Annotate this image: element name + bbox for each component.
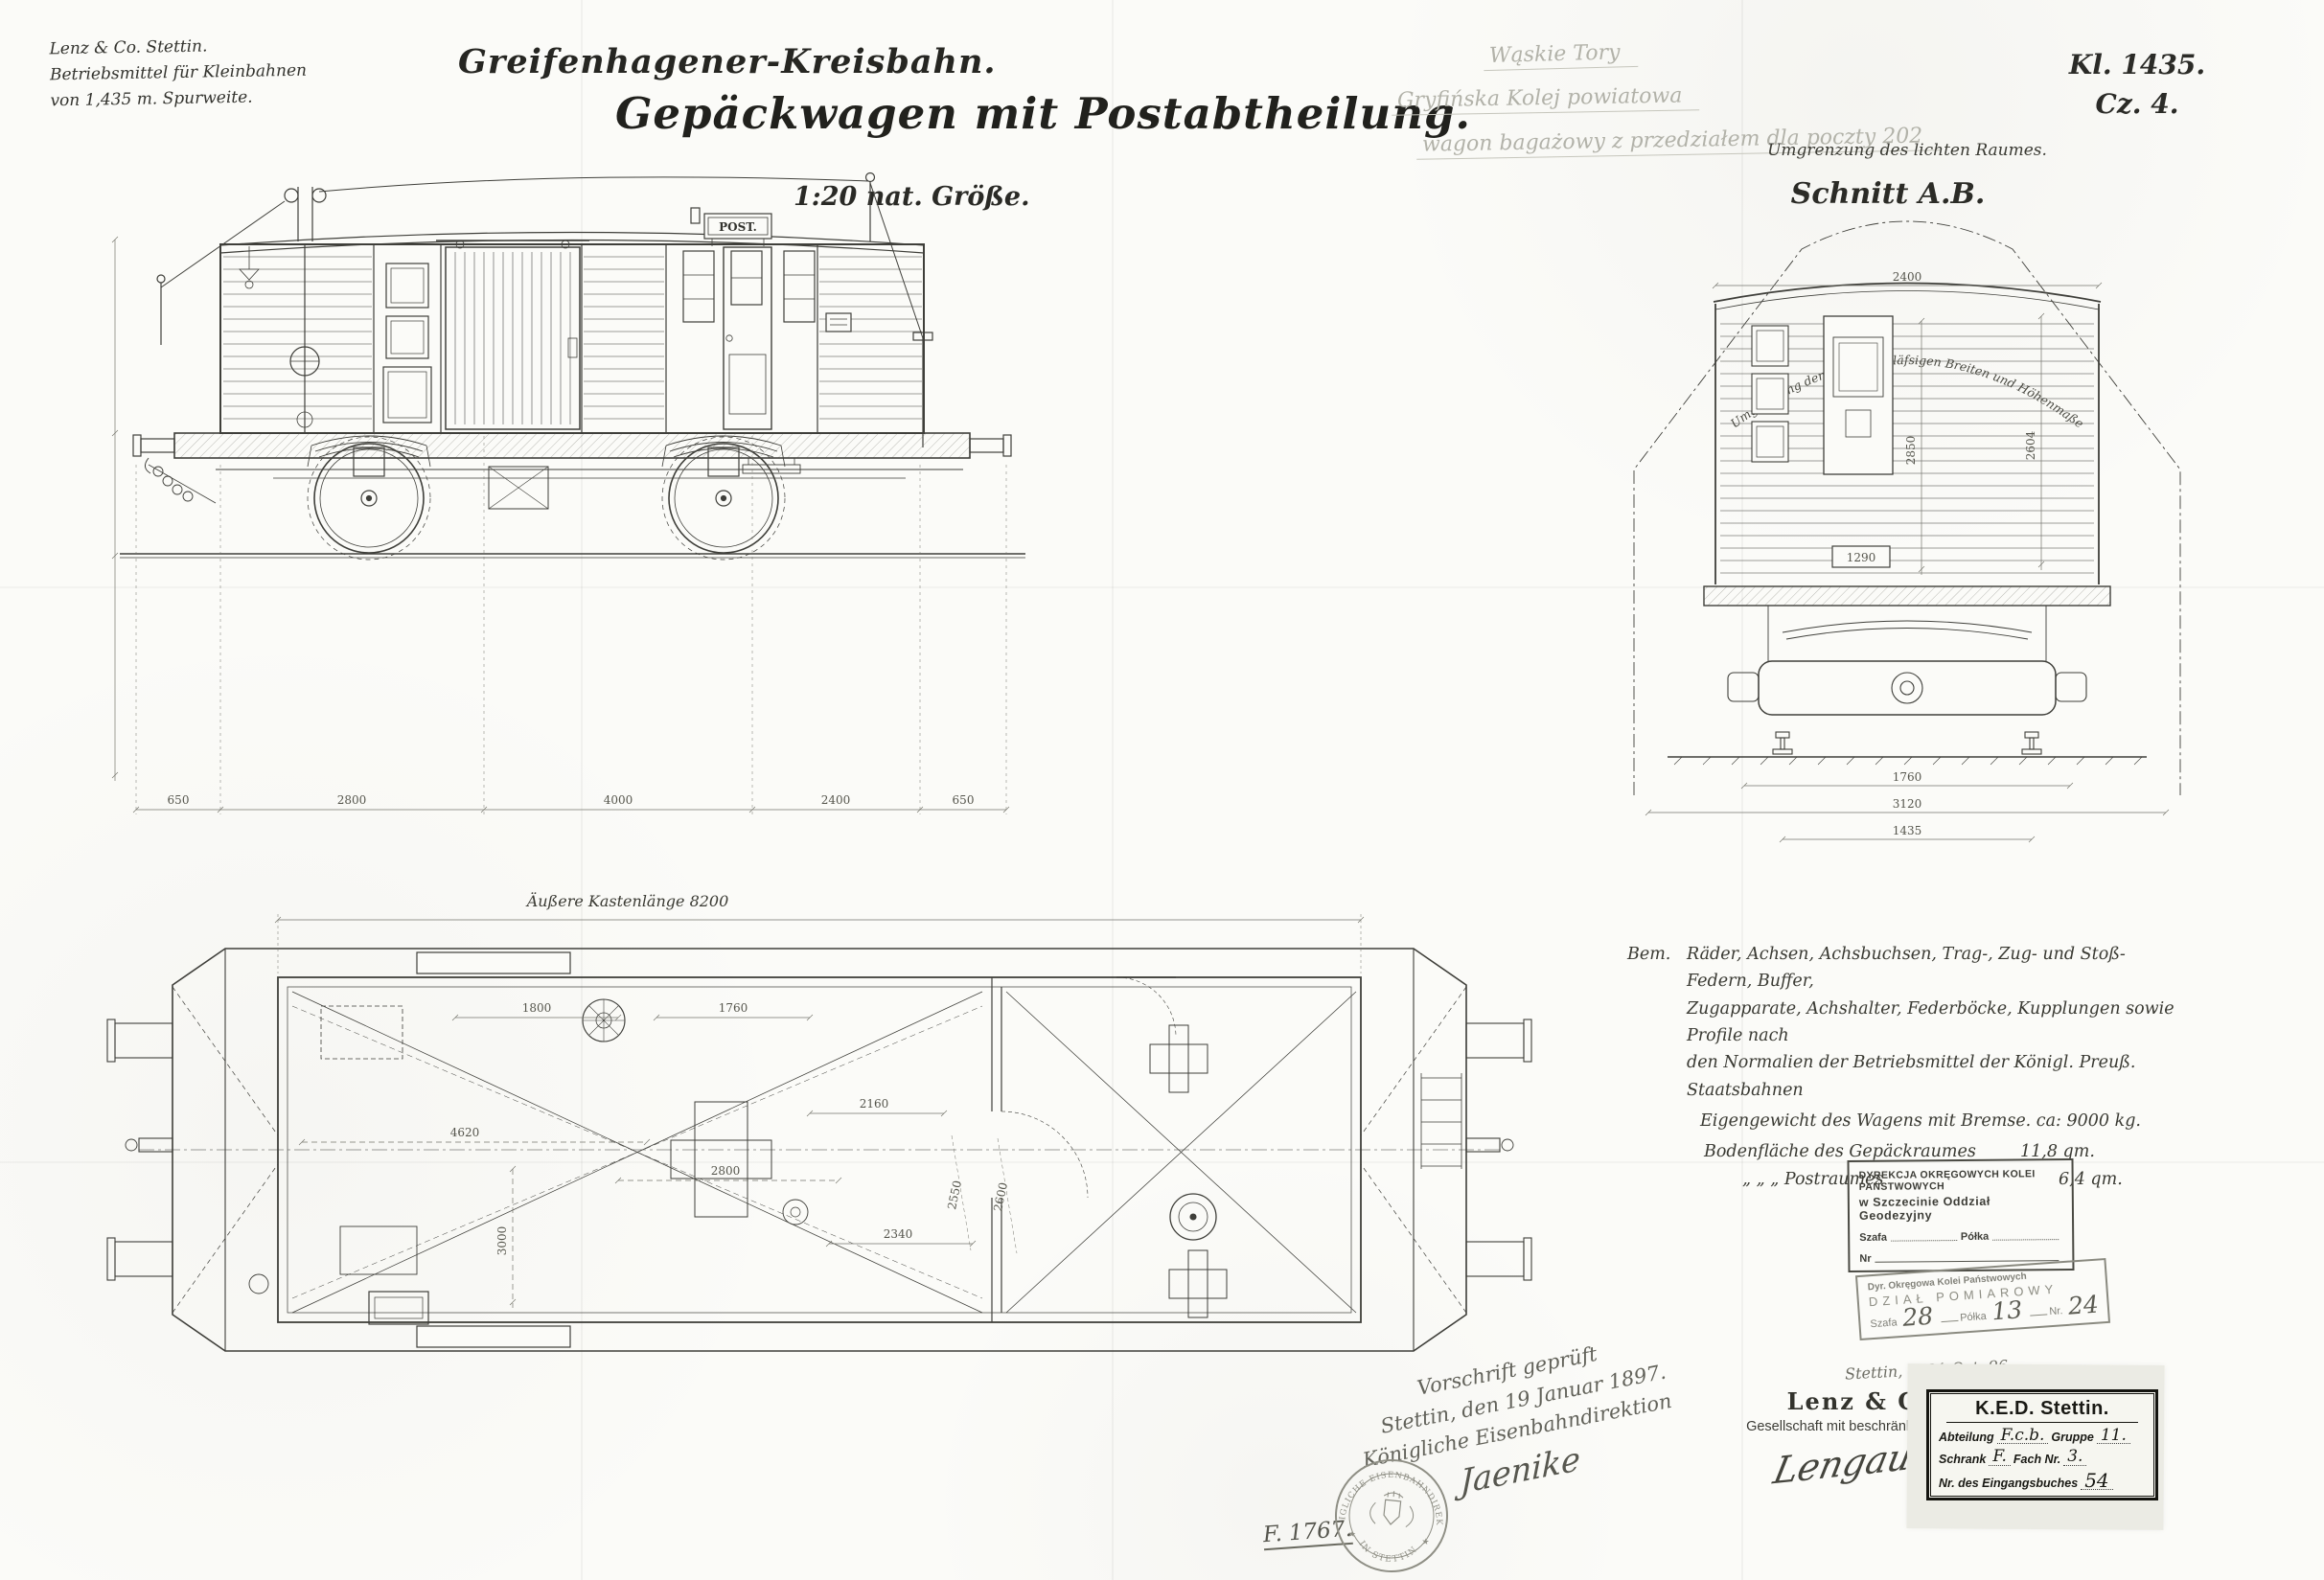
stamp-survey-field-szafa: Szafa — [1870, 1317, 1898, 1330]
stamp-geodesy: DYREKCJA OKRĘGOWYCH KOLEI PAŃSTWOWYCH w … — [1847, 1158, 2074, 1272]
dim-label: 1435 — [1893, 824, 1922, 837]
dim-label: 1760 — [1893, 770, 1922, 784]
section-underframe — [1668, 586, 2147, 765]
remarks-label: Bem. — [1627, 941, 1670, 968]
stamp-geodesy-field-szafa: Szafa — [1859, 1232, 1887, 1244]
blueprint-sheet: Lenz & Co. Stettin. Betriebsmittel für K… — [0, 0, 2324, 1580]
company-line2: Betriebsmittel für Kleinbahnen — [50, 58, 307, 89]
dim-label: 650 — [953, 793, 975, 807]
post-sign: POST. — [719, 220, 757, 234]
page-title: Gepäckwagen mit Postabtheilung. — [615, 88, 1471, 139]
remarks-block: Bem. Räder, Achsen, Achsbuchsen, Trag-, … — [1627, 941, 2178, 1193]
drawing-number-block: Kl. 1435. Cz. 4. — [2032, 46, 2243, 124]
dim-label: 2400 — [1893, 270, 1922, 284]
pencil-note-1: Wąskie Tory — [1484, 42, 1638, 71]
royal-railway-seal: KÖNIGLICHE EISENBAHNDIREKTION IN STETTIN… — [1318, 1442, 1465, 1580]
side-elevation-drawing: POST. — [81, 149, 1576, 886]
stamp-geodesy-line1: DYREKCJA OKRĘGOWYCH KOLEI PAŃSTWOWYCH — [1859, 1168, 2062, 1193]
wagon-roof — [220, 208, 924, 253]
plan-view-drawing: Äußere Kastenlänge 8200 — [81, 882, 1576, 1447]
stamp-geodesy-field-nr: Nr — [1859, 1253, 1871, 1265]
dim-label: 2800 — [337, 793, 367, 807]
company-block: Lenz & Co. Stettin. Betriebsmittel für K… — [49, 33, 307, 115]
plan-length-label: Äußere Kastenlänge 8200 — [525, 891, 729, 910]
dim-label: 2850 — [1904, 436, 1918, 466]
ked-abteilung-value: F.c.b. — [1997, 1429, 2049, 1444]
seal-star-left: ★ — [1347, 1529, 1356, 1540]
clearance-note: Umgrenzung des lichten Raumes. — [1767, 141, 2047, 160]
dim-label: 2800 — [711, 1164, 741, 1178]
ked-fach-value: 3. — [2063, 1450, 2086, 1465]
stamp-survey-field-polka: Półka — [1960, 1311, 1987, 1324]
dim-label: 1760 — [719, 1001, 748, 1015]
pencil-note-2: Gryfińska Kolej powiatowa — [1392, 85, 1700, 116]
dim-label: 650 — [168, 793, 190, 807]
ked-schrank-label: Schrank — [1939, 1453, 1986, 1466]
remarks-line: Zugapparate, Achshalter, Federböcke, Kup… — [1687, 996, 2178, 1050]
drawing-number-cz: Cz. 4. — [2032, 85, 2243, 125]
remarks-line: Räder, Achsen, Achsbuchsen, Trag-, Zug- … — [1687, 941, 2178, 996]
remarks-line: den Normalien der Betriebsmittel der Kön… — [1687, 1049, 2178, 1104]
remarks-weight: Eigengewicht des Wagens mit Bremse. ca: … — [1700, 1108, 2178, 1134]
dim-label: 4000 — [604, 793, 633, 807]
dim-label: 3000 — [495, 1226, 509, 1256]
ked-title: K.E.D. Stettin. — [1946, 1398, 2138, 1423]
car-body-section — [1714, 284, 2101, 585]
ked-abteilung-label: Abteilung — [1939, 1431, 1994, 1444]
ked-eingangsbuch-value: 54 — [2081, 1472, 2112, 1490]
railway-title: Greifenhagener-Kreisbahn. — [458, 42, 997, 81]
plan-truss-rods — [292, 992, 1356, 1313]
ked-gruppe-value: 11. — [2097, 1429, 2130, 1444]
company-line3: von 1,435 m. Spurweite. — [50, 84, 307, 115]
stamp-geodesy-line2: w Szczecinie Oddział Geodezyjny — [1859, 1194, 2062, 1223]
stamp-geodesy-field-polka: Półka — [1961, 1231, 1989, 1243]
dim-label: 2604 — [2024, 430, 2037, 460]
dim-label: 1800 — [522, 1001, 552, 1015]
section-label: Schnitt A.B. — [1791, 177, 1986, 211]
dim-label: 2400 — [821, 793, 851, 807]
cross-section-drawing: Umgrenzung des lichten Raumes. Schnitt A… — [1591, 125, 2223, 891]
stamp-survey-value-polka: 13 — [1991, 1300, 2023, 1321]
dim-label: 2550 — [945, 1179, 964, 1211]
stamp-survey-value-szafa: 28 — [1902, 1307, 1934, 1328]
stamp-survey-value-nr: 24 — [2067, 1295, 2099, 1317]
ked-schrank-value: F. — [1989, 1450, 2011, 1465]
wagon-body — [220, 240, 924, 433]
side-dimension-labels: 650 2800 4000 2400 650 — [168, 793, 975, 807]
dim-label: 4620 — [450, 1126, 480, 1139]
dim-label: 1290 — [1847, 551, 1876, 564]
ked-gruppe-label: Gruppe — [2051, 1431, 2093, 1444]
dim-label: 3120 — [1893, 797, 1922, 811]
plan-furniture — [249, 999, 1227, 1324]
ked-eingangsbuch-label: Nr. des Eingangsbuches — [1939, 1477, 2078, 1490]
ked-registry-box: K.E.D. Stettin. Abteilung F.c.b. Gruppe … — [1926, 1389, 2158, 1500]
dim-label: 2160 — [860, 1097, 889, 1111]
pencil-note-2-text: Gryfińska Kolej powiatowa — [1392, 85, 1700, 116]
ked-fach-label: Fach Nr. — [2013, 1453, 2060, 1466]
svg-text:Umgrenzung des lichten Raumes.: Umgrenzung des lichten Raumes. — [1767, 141, 2047, 160]
dim-label: 2600 — [991, 1181, 1010, 1213]
underframe — [133, 433, 1011, 509]
stamp-survey-field-nr: Nr. — [2049, 1305, 2063, 1317]
dim-label: 2340 — [884, 1227, 913, 1241]
pencil-note-1-text: Wąskie Tory — [1484, 42, 1638, 71]
drawing-number-kl: Kl. 1435. — [2032, 46, 2243, 85]
seal-star-right: ★ — [1421, 1537, 1430, 1547]
